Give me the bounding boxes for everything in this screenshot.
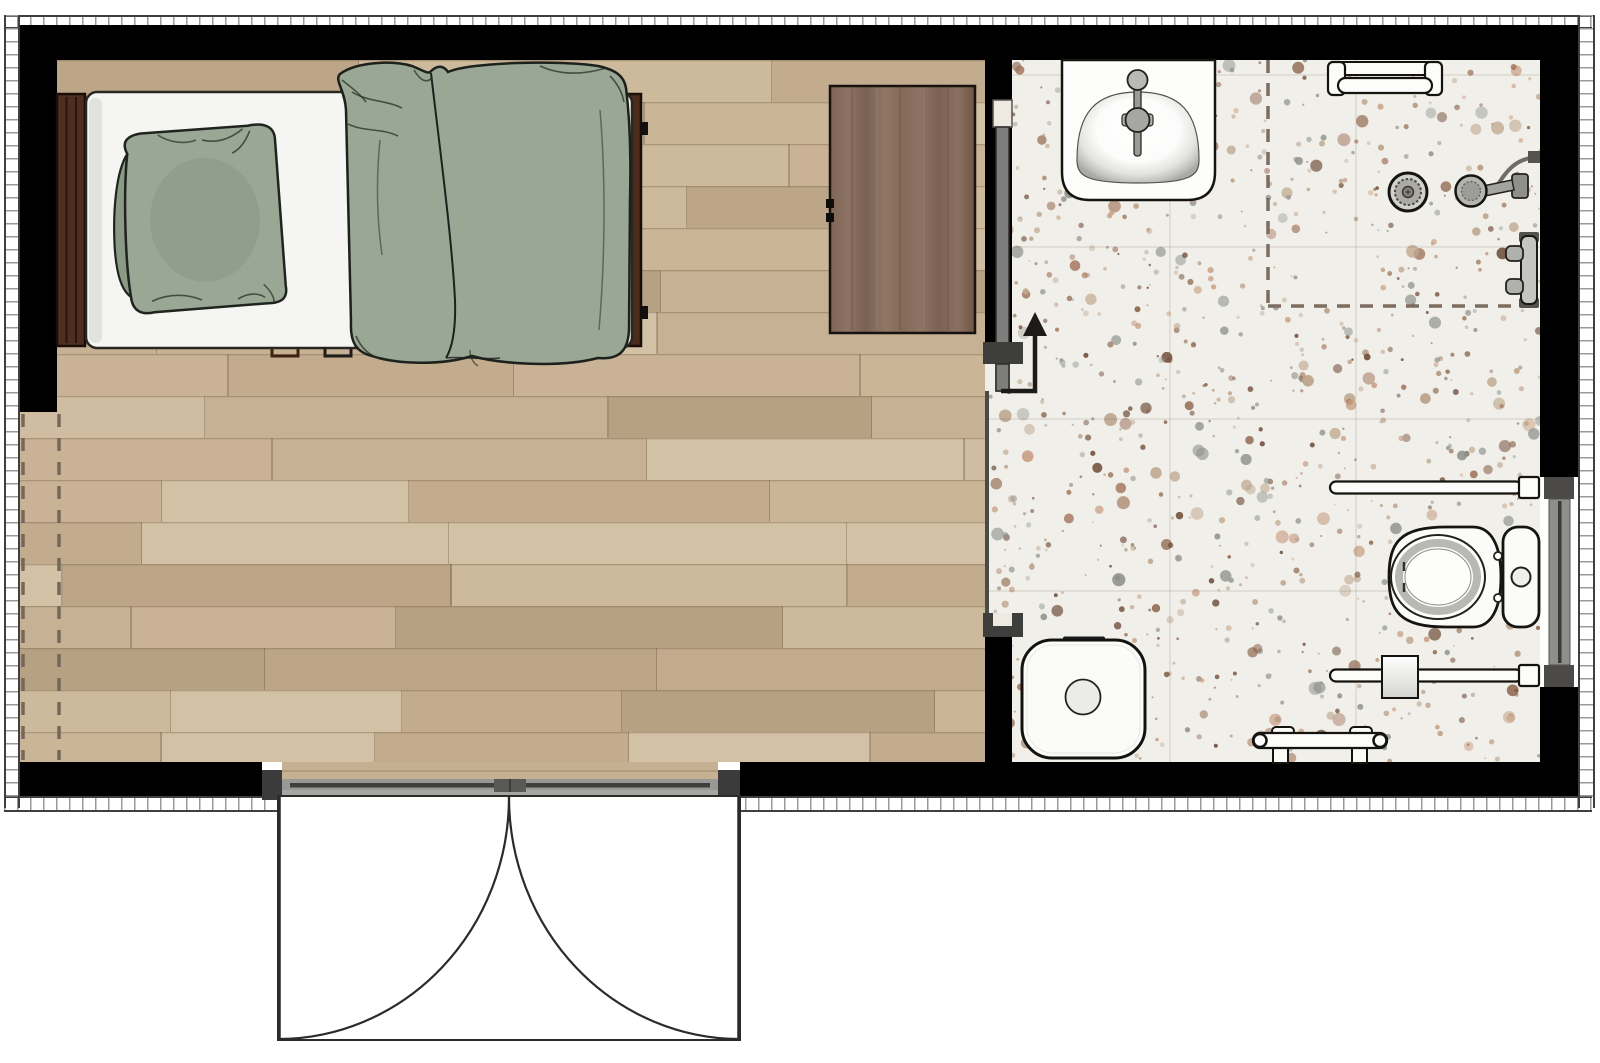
headboard	[57, 94, 85, 346]
pillow	[111, 124, 286, 314]
duvet	[338, 63, 630, 366]
towel-rack	[1328, 62, 1442, 95]
sink-vanity	[1062, 60, 1215, 200]
shower-drain	[1389, 173, 1427, 211]
toilet-paper-holder	[1382, 656, 1418, 698]
dashed-wall-opening	[23, 414, 59, 760]
window	[1540, 477, 1578, 687]
pocket-door	[983, 100, 1023, 637]
grab-bar-lower	[1330, 665, 1539, 686]
stool	[1022, 637, 1145, 759]
bench	[1253, 727, 1387, 763]
entry-door	[262, 762, 740, 1040]
grab-bar-upper	[1330, 477, 1539, 498]
bed	[57, 63, 648, 366]
shower-valve	[1506, 232, 1539, 308]
floor-plan	[0, 0, 1600, 1063]
handheld-shower	[1456, 151, 1541, 207]
wardrobe-cabinet	[826, 86, 975, 333]
toilet	[1389, 527, 1539, 627]
